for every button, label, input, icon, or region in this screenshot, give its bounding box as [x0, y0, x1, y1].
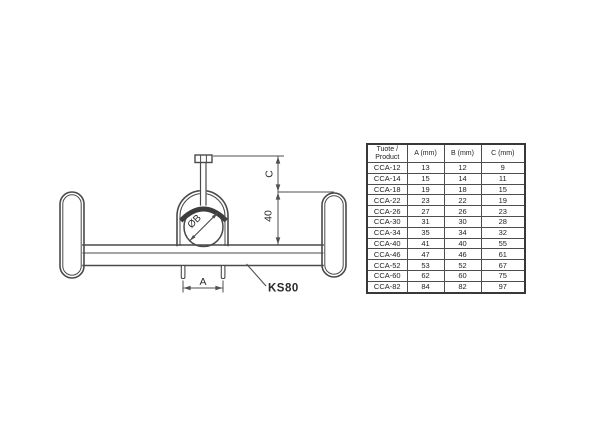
- table-row: CCA-82 84 82 97: [367, 281, 525, 292]
- col-header-b: B (mm): [444, 144, 481, 163]
- table-row: CCA-34 35 34 32: [367, 227, 525, 238]
- table-row: CCA-18 19 18 15: [367, 184, 525, 195]
- col-header-product: Tuote / Product: [367, 144, 407, 163]
- cell-c: 97: [481, 281, 525, 292]
- cell-product: CCA-52: [367, 260, 407, 271]
- table-row: CCA-22 23 22 19: [367, 195, 525, 206]
- cell-a: 19: [407, 184, 444, 195]
- cell-b: 82: [444, 281, 481, 292]
- bolt-shaft: [200, 162, 207, 205]
- col-header-a: A (mm): [407, 144, 444, 163]
- col-header-product-line2: Product: [368, 154, 407, 162]
- cell-a: 41: [407, 238, 444, 249]
- left-end-cap: [60, 192, 84, 278]
- cell-product: CCA-60: [367, 270, 407, 281]
- cell-b: 30: [444, 216, 481, 227]
- cell-c: 28: [481, 216, 525, 227]
- table-row: CCA-40 41 40 55: [367, 238, 525, 249]
- cell-c: 67: [481, 260, 525, 271]
- cell-c: 61: [481, 249, 525, 260]
- cell-b: 22: [444, 195, 481, 206]
- table-row: CCA-60 62 60 75: [367, 270, 525, 281]
- cell-b: 12: [444, 163, 481, 174]
- right-end-cap: [322, 193, 346, 277]
- cell-product: CCA-14: [367, 173, 407, 184]
- cell-a: 31: [407, 216, 444, 227]
- cell-a: 35: [407, 227, 444, 238]
- table-row: CCA-52 53 52 67: [367, 260, 525, 271]
- clamp-side-view-diagram: C 40 A ØB KS80: [0, 0, 360, 425]
- dim-a-label: A: [199, 276, 206, 288]
- cell-c: 9: [481, 163, 525, 174]
- cell-b: 52: [444, 260, 481, 271]
- cell-product: CCA-40: [367, 238, 407, 249]
- cell-a: 15: [407, 173, 444, 184]
- dim-c-label: C: [264, 170, 276, 178]
- cell-b: 26: [444, 206, 481, 217]
- cell-product: CCA-82: [367, 281, 407, 292]
- cell-b: 18: [444, 184, 481, 195]
- cell-c: 15: [481, 184, 525, 195]
- rail-ks80-label: KS80: [268, 283, 299, 295]
- table-row: CCA-30 31 30 28: [367, 216, 525, 227]
- dim-40-label: 40: [263, 210, 275, 222]
- table-row: CCA-12 13 12 9: [367, 163, 525, 174]
- technical-drawing-page: C 40 A ØB KS80 Tuote / Product A (mm) B …: [0, 0, 600, 425]
- cell-a: 13: [407, 163, 444, 174]
- cell-a: 27: [407, 206, 444, 217]
- table-row: CCA-26 27 26 23: [367, 206, 525, 217]
- cell-c: 19: [481, 195, 525, 206]
- cell-product: CCA-22: [367, 195, 407, 206]
- cell-a: 47: [407, 249, 444, 260]
- cell-b: 14: [444, 173, 481, 184]
- cell-c: 75: [481, 270, 525, 281]
- cell-a: 62: [407, 270, 444, 281]
- cell-a: 84: [407, 281, 444, 292]
- product-dimension-table: Tuote / Product A (mm) B (mm) C (mm) CCA…: [366, 143, 526, 294]
- cell-c: 23: [481, 206, 525, 217]
- cell-b: 34: [444, 227, 481, 238]
- cell-c: 11: [481, 173, 525, 184]
- cell-product: CCA-46: [367, 249, 407, 260]
- cell-a: 53: [407, 260, 444, 271]
- ks80-leader-line: [247, 264, 267, 286]
- cell-c: 55: [481, 238, 525, 249]
- cell-b: 60: [444, 270, 481, 281]
- cell-b: 46: [444, 249, 481, 260]
- table-row: CCA-14 15 14 11: [367, 173, 525, 184]
- cell-product: CCA-30: [367, 216, 407, 227]
- col-header-product-line1: Tuote /: [368, 146, 407, 154]
- table-header-row: Tuote / Product A (mm) B (mm) C (mm): [367, 144, 525, 163]
- col-header-c: C (mm): [481, 144, 525, 163]
- cell-a: 23: [407, 195, 444, 206]
- cell-b: 40: [444, 238, 481, 249]
- cell-product: CCA-34: [367, 227, 407, 238]
- cell-product: CCA-18: [367, 184, 407, 195]
- cell-product: CCA-26: [367, 206, 407, 217]
- dimension-c-and-40: [213, 156, 334, 245]
- cell-product: CCA-12: [367, 163, 407, 174]
- cell-c: 32: [481, 227, 525, 238]
- table-row: CCA-46 47 46 61: [367, 249, 525, 260]
- bolt-head: [195, 155, 212, 163]
- rail-ks80: [83, 245, 323, 266]
